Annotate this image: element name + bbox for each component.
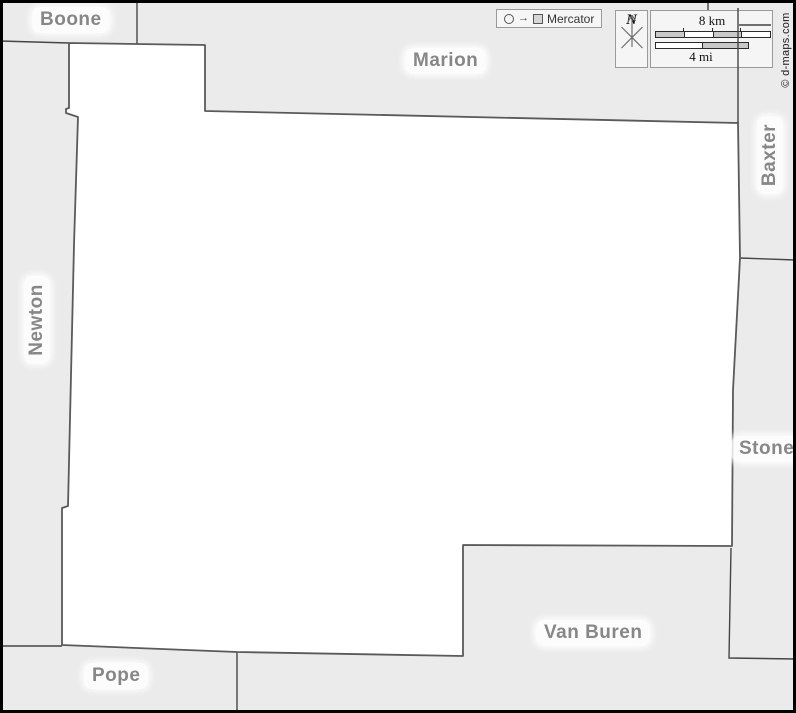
projection-label: Mercator — [547, 12, 594, 26]
scale-bar-box: 8 km 4 mi — [650, 10, 773, 68]
copyright-text: © d-maps.com — [780, 12, 792, 87]
county-map-svg — [0, 0, 796, 713]
north-arrow-box: N — [615, 10, 648, 68]
scale-km-label: 8 km — [655, 13, 769, 29]
scale-bar-km — [655, 31, 771, 38]
map-canvas: Boone Marion Baxter Newton Stone Van Bur… — [0, 0, 796, 713]
compass-star-icon — [617, 11, 647, 49]
county-label-pope: Pope — [84, 663, 148, 689]
projection-legend: → Mercator — [496, 9, 602, 28]
projection-square-icon — [533, 14, 543, 24]
county-label-boone: Boone — [32, 7, 110, 33]
scale-mi-label: 4 mi — [655, 49, 747, 65]
projection-circle-icon — [504, 14, 514, 24]
county-label-marion: Marion — [405, 48, 486, 74]
county-label-stone: Stone — [731, 436, 796, 462]
county-label-baxter: Baxter — [757, 116, 783, 194]
county-label-van-buren: Van Buren — [536, 620, 650, 646]
scale-bar-mi — [655, 42, 749, 49]
county-label-newton: Newton — [24, 276, 50, 364]
projection-arrow-icon: → — [518, 13, 529, 24]
